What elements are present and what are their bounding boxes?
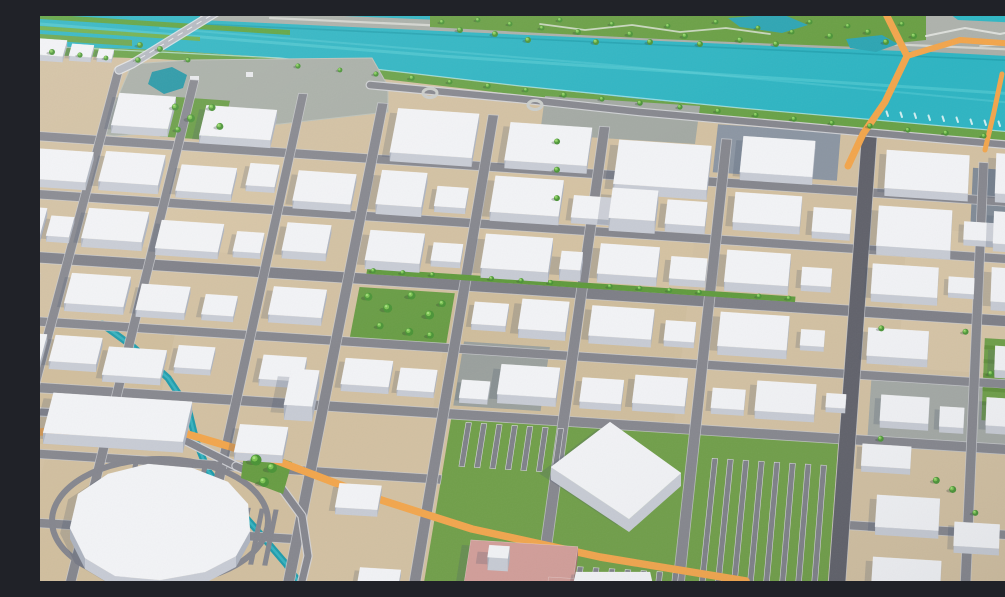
city-map-render[interactable] (40, 16, 1005, 581)
map-canvas (40, 16, 1005, 581)
grain-overlay (40, 16, 1005, 581)
